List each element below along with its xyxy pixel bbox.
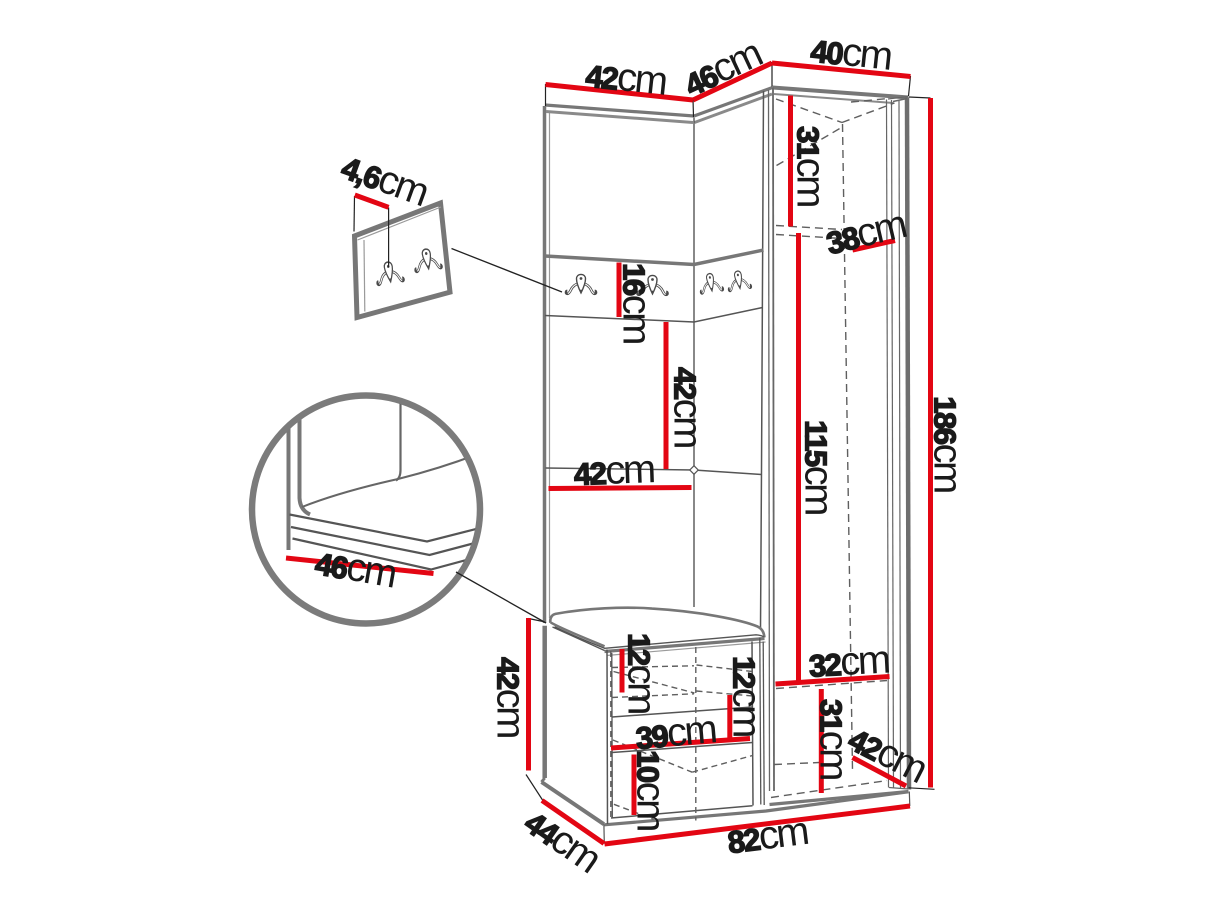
svg-text:42cm: 42cm — [665, 367, 709, 447]
svg-text:31cm: 31cm — [788, 126, 832, 206]
svg-text:186cm: 186cm — [925, 396, 969, 492]
svg-text:42cm: 42cm — [488, 657, 532, 737]
svg-text:115cm: 115cm — [796, 420, 840, 514]
svg-text:10cm: 10cm — [628, 750, 672, 830]
svg-text:16cm: 16cm — [614, 263, 658, 343]
svg-text:12cm: 12cm — [724, 656, 768, 736]
svg-text:12cm: 12cm — [619, 633, 663, 713]
